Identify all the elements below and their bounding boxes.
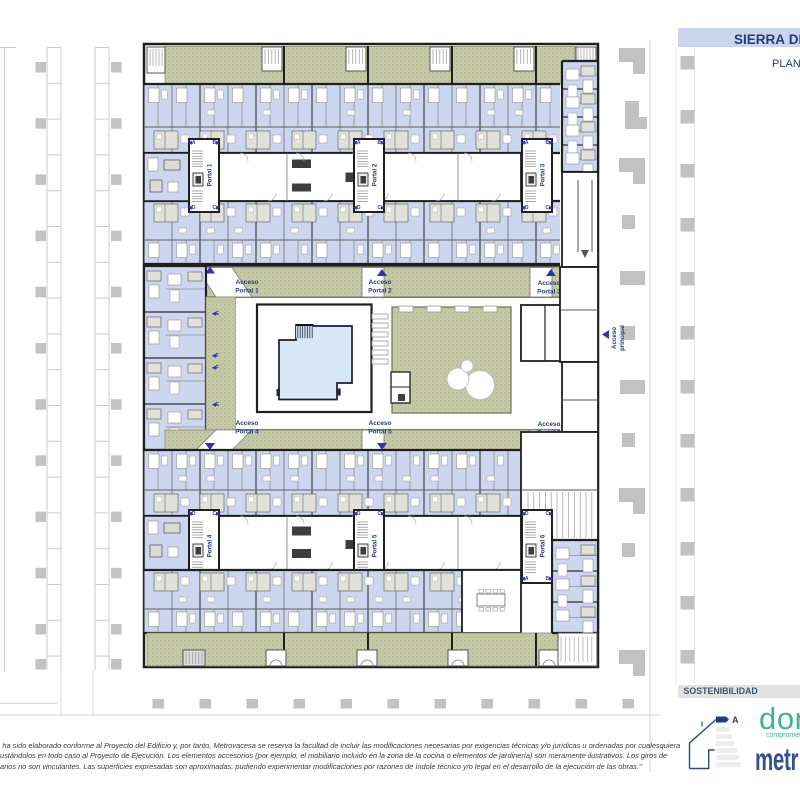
svg-text:B▶: B▶ xyxy=(546,140,555,146)
svg-text:◀D: ◀D xyxy=(352,511,361,517)
svg-text:Portal 6: Portal 6 xyxy=(540,534,547,557)
svg-text:C▶: C▶ xyxy=(213,205,222,211)
svg-text:Portal 4: Portal 4 xyxy=(235,429,259,436)
svg-text:C▶: C▶ xyxy=(378,511,387,517)
svg-text:Acceso: Acceso xyxy=(538,280,561,287)
svg-text:B▶: B▶ xyxy=(546,576,555,582)
svg-text:Portal 5: Portal 5 xyxy=(372,534,379,557)
svg-text:◀A: ◀A xyxy=(520,576,529,582)
svg-text:◀D: ◀D xyxy=(520,205,529,211)
svg-text:A: A xyxy=(732,715,739,725)
svg-text:C▶: C▶ xyxy=(546,511,555,517)
svg-text:C▶: C▶ xyxy=(213,511,222,517)
svg-text:Portal 3: Portal 3 xyxy=(537,289,561,296)
svg-text:Portal 4: Portal 4 xyxy=(207,534,214,557)
svg-text:Portal 3: Portal 3 xyxy=(540,163,547,186)
svg-text:◀A: ◀A xyxy=(520,140,529,146)
svg-text:Acceso: Acceso xyxy=(236,279,259,286)
svg-text:◀D: ◀D xyxy=(520,511,529,517)
svg-text:Portal 5: Portal 5 xyxy=(368,429,392,436)
svg-text:Portal 1: Portal 1 xyxy=(235,288,259,295)
svg-text:principal: principal xyxy=(619,325,626,351)
svg-text:◀D: ◀D xyxy=(187,205,196,211)
svg-text:Portal 1: Portal 1 xyxy=(207,163,214,186)
svg-text:Acceso: Acceso xyxy=(369,420,392,427)
svg-text:◀F: ◀F xyxy=(211,365,219,371)
svg-text:B▶: B▶ xyxy=(213,140,222,146)
svg-text:Acceso: Acceso xyxy=(538,421,561,428)
svg-text:Acceso: Acceso xyxy=(611,327,618,349)
svg-text:C▶: C▶ xyxy=(378,205,387,211)
svg-text:B▶: B▶ xyxy=(378,140,387,146)
svg-text:◀A: ◀A xyxy=(352,140,361,146)
svg-text:◀D: ◀D xyxy=(352,205,361,211)
svg-text:Acceso: Acceso xyxy=(369,279,392,286)
svg-text:◀E: ◀E xyxy=(211,402,220,408)
svg-text:◀E: ◀E xyxy=(211,311,220,317)
svg-text:Portal 2: Portal 2 xyxy=(372,163,379,186)
svg-text:◀F: ◀F xyxy=(211,353,219,359)
svg-text:◀D: ◀D xyxy=(187,511,196,517)
svg-text:Acceso: Acceso xyxy=(236,420,259,427)
svg-text:C▶: C▶ xyxy=(546,205,555,211)
svg-text:Portal 2: Portal 2 xyxy=(368,288,392,295)
svg-text:◀A: ◀A xyxy=(187,140,196,146)
